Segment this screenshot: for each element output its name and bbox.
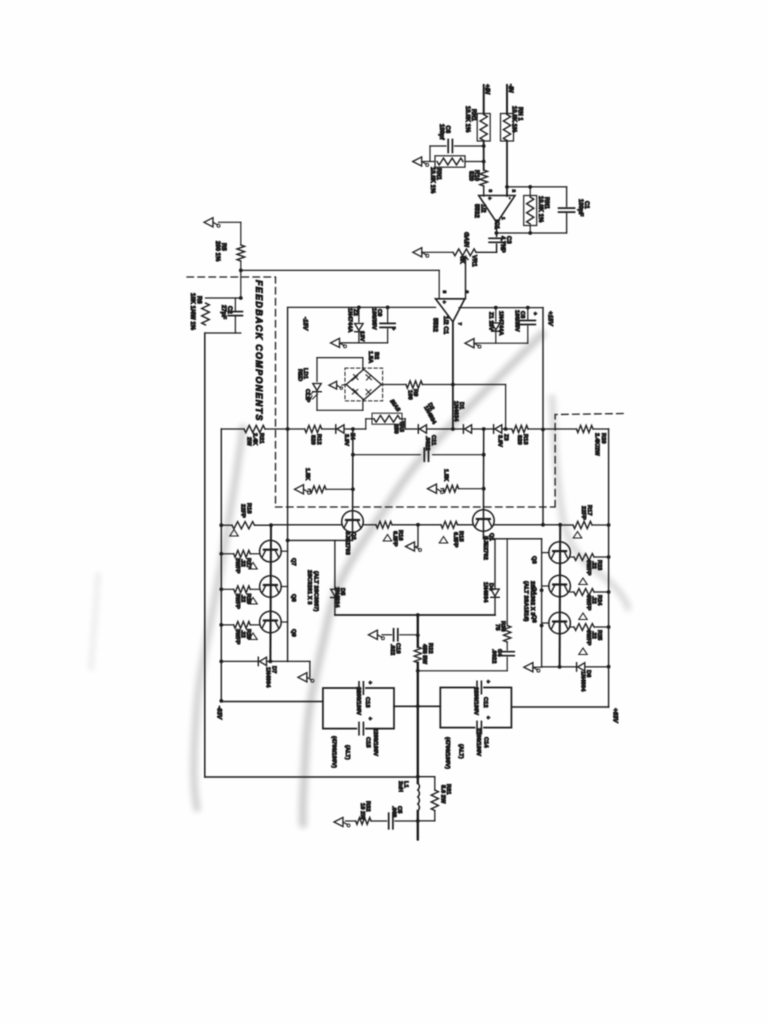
svg-text:CLIP: CLIP	[304, 389, 310, 402]
svg-text:C13: C13	[364, 697, 370, 708]
svg-text:3WFP: 3WFP	[585, 630, 591, 646]
svg-text:+15V: +15V	[547, 311, 554, 326]
svg-text:Q7: Q7	[290, 558, 296, 566]
svg-text:.022: .022	[389, 644, 395, 655]
svg-text:100pF: 100pF	[577, 199, 583, 217]
svg-text:C12: C12	[482, 697, 488, 708]
svg-text:2SA1302 X 3: 2SA1302 X 3	[529, 581, 535, 616]
svg-text:4.7NP: 4.7NP	[499, 236, 505, 253]
svg-text:-15V: -15V	[302, 317, 309, 331]
svg-text:22FP: 22FP	[240, 504, 246, 518]
svg-text:1N4934: 1N4934	[334, 587, 340, 608]
svg-text:Q8: Q8	[290, 594, 296, 603]
svg-text:3WFP: 3WFP	[234, 558, 240, 574]
svg-text:100: 100	[407, 390, 413, 400]
svg-text:+63V: +63V	[612, 708, 619, 723]
svg-text:10.0K 1%: 10.0K 1%	[464, 106, 470, 133]
svg-text:+: +	[441, 301, 447, 304]
svg-text:5532: 5532	[473, 204, 480, 218]
svg-text:27pF: 27pF	[220, 305, 226, 319]
svg-text:3WFP: 3WFP	[585, 560, 591, 576]
svg-text:2SC3281 X 3: 2SC3281 X 3	[306, 570, 312, 605]
svg-text:+: +	[485, 716, 491, 719]
svg-text:R21: R21	[258, 433, 264, 444]
svg-text:(ALT 2SC3807): (ALT 2SC3807)	[313, 571, 319, 612]
svg-text:-: -	[507, 197, 513, 199]
svg-text:Q6: Q6	[531, 615, 537, 624]
svg-text:Q3: Q3	[531, 556, 537, 565]
svg-text:VR1: VR1	[471, 255, 477, 267]
svg-text:GAIN: GAIN	[463, 232, 469, 248]
svg-text:1N4004: 1N4004	[265, 667, 271, 688]
svg-text:-IN: -IN	[507, 84, 514, 93]
svg-text:10.0K 1%: 10.0K 1%	[537, 196, 543, 223]
svg-text:200 1%: 200 1%	[214, 241, 220, 262]
svg-text:Q9: Q9	[290, 629, 296, 638]
svg-text:(4700/100V): (4700/100V)	[444, 737, 450, 769]
svg-text:250: 250	[393, 424, 399, 434]
svg-text:2200/100V: 2200/100V	[475, 728, 481, 756]
svg-text:3.9V: 3.9V	[497, 435, 503, 447]
svg-text:1N4744A: 1N4744A	[347, 308, 353, 333]
svg-text:10K 1/4W 1%: 10K 1/4W 1%	[189, 293, 195, 331]
svg-text:+: +	[390, 327, 396, 330]
svg-text:R20: R20	[600, 433, 606, 444]
svg-text:2: 2	[511, 190, 517, 193]
svg-text:6: 6	[464, 291, 470, 294]
svg-text:RED: RED	[297, 369, 303, 381]
svg-text:2.4K/2W: 2.4K/2W	[594, 433, 600, 456]
svg-text:+: +	[367, 681, 373, 684]
svg-text:2200/100V: 2200/100V	[473, 687, 479, 715]
svg-text:1.5K: 1.5K	[443, 469, 449, 482]
svg-text:+: +	[486, 197, 492, 200]
svg-text:1N4934: 1N4934	[482, 582, 488, 603]
svg-text:6.8FP: 6.8FP	[392, 531, 398, 547]
svg-text:1.5A: 1.5A	[367, 351, 373, 364]
svg-text:(4700/100V): (4700/100V)	[331, 736, 337, 768]
svg-text:-63V: -63V	[216, 706, 223, 720]
svg-text:.068: .068	[391, 806, 397, 818]
svg-text:3.9V: 3.9V	[343, 434, 349, 446]
svg-text:FEEDBACK COMPONENTS: FEEDBACK COMPONENTS	[254, 280, 264, 422]
svg-text:5: 5	[441, 291, 447, 294]
svg-text:+: +	[367, 717, 373, 720]
svg-text:100/35V: 100/35V	[514, 310, 520, 332]
svg-text:2200/100V: 2200/100V	[372, 728, 378, 756]
svg-text:100pf: 100pf	[438, 124, 444, 141]
svg-text:3: 3	[487, 190, 493, 193]
svg-text:+: +	[532, 312, 538, 315]
svg-text:10.0K 1%: 10.0K 1%	[429, 167, 435, 194]
svg-text:5K: 5K	[459, 256, 465, 264]
svg-text:3WFP: 3WFP	[234, 629, 240, 645]
svg-text:(ALT 2SA1516): (ALT 2SA1516)	[523, 581, 529, 622]
svg-text:1N4634: 1N4634	[453, 401, 459, 422]
svg-text:22FP: 22FP	[580, 506, 586, 520]
svg-text:R6: R6	[196, 296, 202, 304]
svg-text:.0022: .0022	[491, 649, 497, 664]
svg-text:2200/100V: 2200/100V	[355, 687, 361, 715]
svg-text:75: 75	[494, 624, 500, 631]
svg-text:100/35V: 100/35V	[371, 308, 377, 330]
svg-text:1N4004: 1N4004	[580, 671, 586, 692]
svg-text:820: 820	[310, 435, 316, 445]
svg-text:.0022: .0022	[424, 436, 430, 451]
svg-text:+: +	[485, 680, 491, 683]
svg-text:(ALT): (ALT)	[344, 745, 350, 760]
svg-text:1.5K: 1.5K	[304, 468, 310, 481]
svg-text:6.8FP: 6.8FP	[452, 532, 458, 548]
svg-text:820: 820	[468, 171, 474, 182]
svg-text:5532: 5532	[432, 318, 439, 332]
svg-text:13V: 13V	[359, 331, 365, 341]
svg-text:2uH: 2uH	[397, 781, 403, 792]
svg-text:Z1 13V: Z1 13V	[488, 312, 494, 331]
svg-text:(ALT): (ALT)	[458, 744, 464, 759]
svg-text:3WFP: 3WFP	[234, 594, 240, 610]
svg-text:2W: 2W	[246, 437, 252, 446]
svg-text:10.0K 1%: 10.0K 1%	[511, 106, 517, 133]
svg-text:450 5W: 450 5W	[421, 644, 427, 665]
svg-text:820: 820	[516, 435, 522, 445]
svg-text:1/2 C1: 1/2 C1	[442, 316, 449, 335]
svg-text:3WFP: 3WFP	[585, 595, 591, 611]
svg-text:C14: C14	[483, 737, 489, 748]
svg-text:C15: C15	[365, 737, 371, 748]
svg-text:1N4744A: 1N4744A	[498, 311, 504, 336]
svg-text:SJE2762: SJE2762	[482, 536, 488, 560]
svg-text:SJE2763: SJE2763	[344, 531, 350, 556]
svg-text:5.6 2W: 5.6 2W	[440, 785, 446, 804]
svg-text:+IN: +IN	[484, 84, 491, 95]
svg-text:10 2W: 10 2W	[359, 803, 365, 820]
svg-text:7: 7	[457, 323, 463, 326]
